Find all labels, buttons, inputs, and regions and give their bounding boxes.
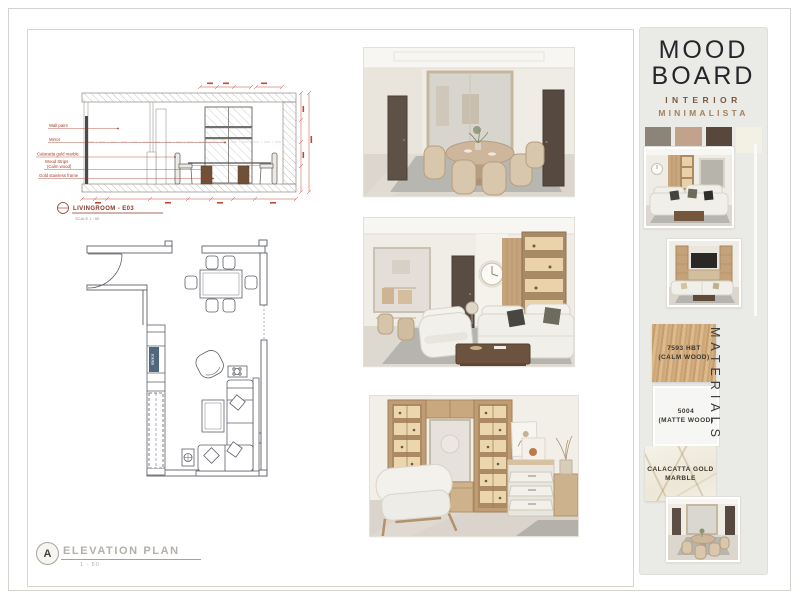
- svg-text:Calacatta gold marble: Calacatta gold marble: [37, 152, 79, 157]
- living-reference-scene: [646, 149, 732, 226]
- coffee-table-plan: [202, 400, 224, 432]
- sheet-scale: 1 : 50: [80, 562, 100, 568]
- elevation-title: LIVINGROOM - E03 SCALE 1 : 50: [58, 203, 164, 222]
- panel-divider-strip: [754, 144, 757, 316]
- moodboard-photo-dining: [666, 497, 740, 562]
- floor-lamp-plan: [182, 449, 194, 466]
- presentation-sheet: Wall paint Mirror Calacatta gold marble …: [0, 0, 800, 600]
- sheet-title-block: A ELEVATION PLAN 1 : 50: [36, 542, 316, 576]
- dining-set-plan: [185, 256, 257, 312]
- marker-letter: A: [44, 548, 52, 560]
- wall-clock: [479, 261, 505, 287]
- subtitle-interior: INTERIOR: [640, 95, 767, 105]
- moodboard-photo-living: [644, 147, 734, 228]
- elevation-plan-marker: A: [36, 542, 59, 565]
- svg-text:LIVINGROOM - E03: LIVINGROOM - E03: [73, 206, 134, 212]
- svg-text:SCALE 1 : 50: SCALE 1 : 50: [75, 216, 100, 221]
- plan-mirror-tag: mirror: [149, 347, 159, 372]
- bridge-cabinet: [424, 400, 476, 418]
- render-cabinet-wall: [370, 396, 578, 536]
- moodboard-title: MOOD BOARD: [640, 37, 767, 89]
- entry-door: [88, 254, 122, 288]
- right-door: [543, 90, 564, 186]
- title-underline: [61, 559, 201, 560]
- material-code: CALACATTA GOLD: [647, 465, 713, 474]
- dining-reference-scene: [668, 499, 738, 560]
- tv-wall-scene: [669, 241, 739, 305]
- title-line-2: BOARD: [640, 63, 767, 89]
- side-table-plant-plan: [228, 366, 247, 377]
- svg-text:Wall paint: Wall paint: [49, 123, 69, 128]
- subtitle-minimalista: MINIMALISTA: [640, 108, 767, 118]
- material-code: 5004: [678, 407, 694, 416]
- render-dining-room: [364, 48, 574, 196]
- armchair-plan: [193, 347, 227, 381]
- elevation-callouts: Wall paint Mirror Calacatta gold marble …: [36, 123, 226, 179]
- sheet-title: ELEVATION PLAN: [63, 545, 180, 557]
- wall-mirror: [374, 248, 430, 312]
- elevation-drawing: Wall paint Mirror Calacatta gold marble …: [35, 80, 315, 230]
- moodboard-photo-tv-wall: [667, 239, 741, 307]
- floor-plan: mirror: [75, 228, 297, 496]
- material-swatch-calm-wood: 7593 HBT (CALM WOOD): [652, 324, 716, 382]
- svg-text:Mirror: Mirror: [49, 137, 61, 142]
- display-cabinet-right: [474, 400, 512, 512]
- mirror-edge-strip: [85, 116, 88, 184]
- coffee-table: [456, 344, 530, 366]
- render-living-room: [364, 218, 574, 366]
- material-label: (MATTE WOOD): [659, 416, 714, 425]
- svg-text:(Calm wood): (Calm wood): [47, 164, 72, 169]
- left-door: [388, 96, 407, 180]
- title-line-1: MOOD: [640, 37, 767, 63]
- svg-text:mirror: mirror: [150, 353, 155, 365]
- svg-text:Gold stainless frame: Gold stainless frame: [39, 173, 79, 178]
- palette-swatch: [736, 127, 762, 153]
- material-label: MARBLE: [665, 474, 696, 483]
- material-swatch-calacatta-marble: CALACATTA GOLD MARBLE: [645, 446, 716, 501]
- moodboard-panel: MOOD BOARD INTERIOR MINIMALISTA: [639, 27, 768, 575]
- material-code: 7593 HBT: [667, 344, 701, 353]
- materials-heading: MATERIALS: [708, 327, 722, 481]
- material-label: (CALM WOOD): [658, 353, 709, 362]
- dresser: [508, 460, 554, 516]
